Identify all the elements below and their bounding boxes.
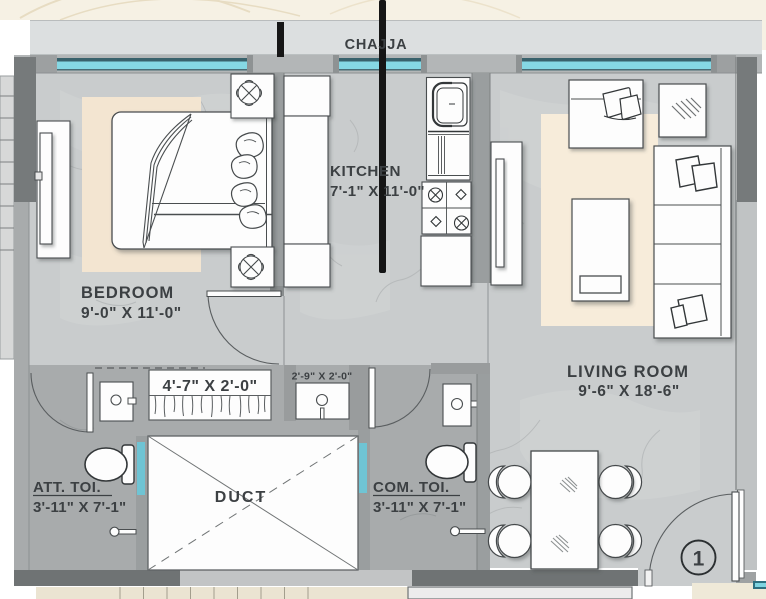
svg-text:3'-11" X 7'-1": 3'-11" X 7'-1" [373,499,466,516]
svg-text:9'-6" X 18'-6": 9'-6" X 18'-6" [578,383,679,400]
svg-text:KITCHEN: KITCHEN [330,163,401,180]
svg-text:LIVING ROOM: LIVING ROOM [567,363,689,381]
svg-text:1: 1 [693,548,705,571]
svg-text:4'-7" X 2'-0": 4'-7" X 2'-0" [162,378,257,395]
svg-text:ATT. TOI.: ATT. TOI. [33,479,101,496]
svg-text:7'-1" X 11'-0": 7'-1" X 11'-0" [330,183,425,200]
svg-text:COM. TOI.: COM. TOI. [373,479,450,496]
svg-text:BEDROOM: BEDROOM [81,284,174,302]
svg-text:3'-11" X 7'-1": 3'-11" X 7'-1" [33,499,126,516]
svg-text:9'-0" X 11'-0": 9'-0" X 11'-0" [81,305,182,322]
svg-text:2'-9" X 2'-0": 2'-9" X 2'-0" [292,371,353,383]
svg-text:CHAJJA: CHAJJA [345,37,408,53]
svg-text:DUCT: DUCT [215,489,267,506]
